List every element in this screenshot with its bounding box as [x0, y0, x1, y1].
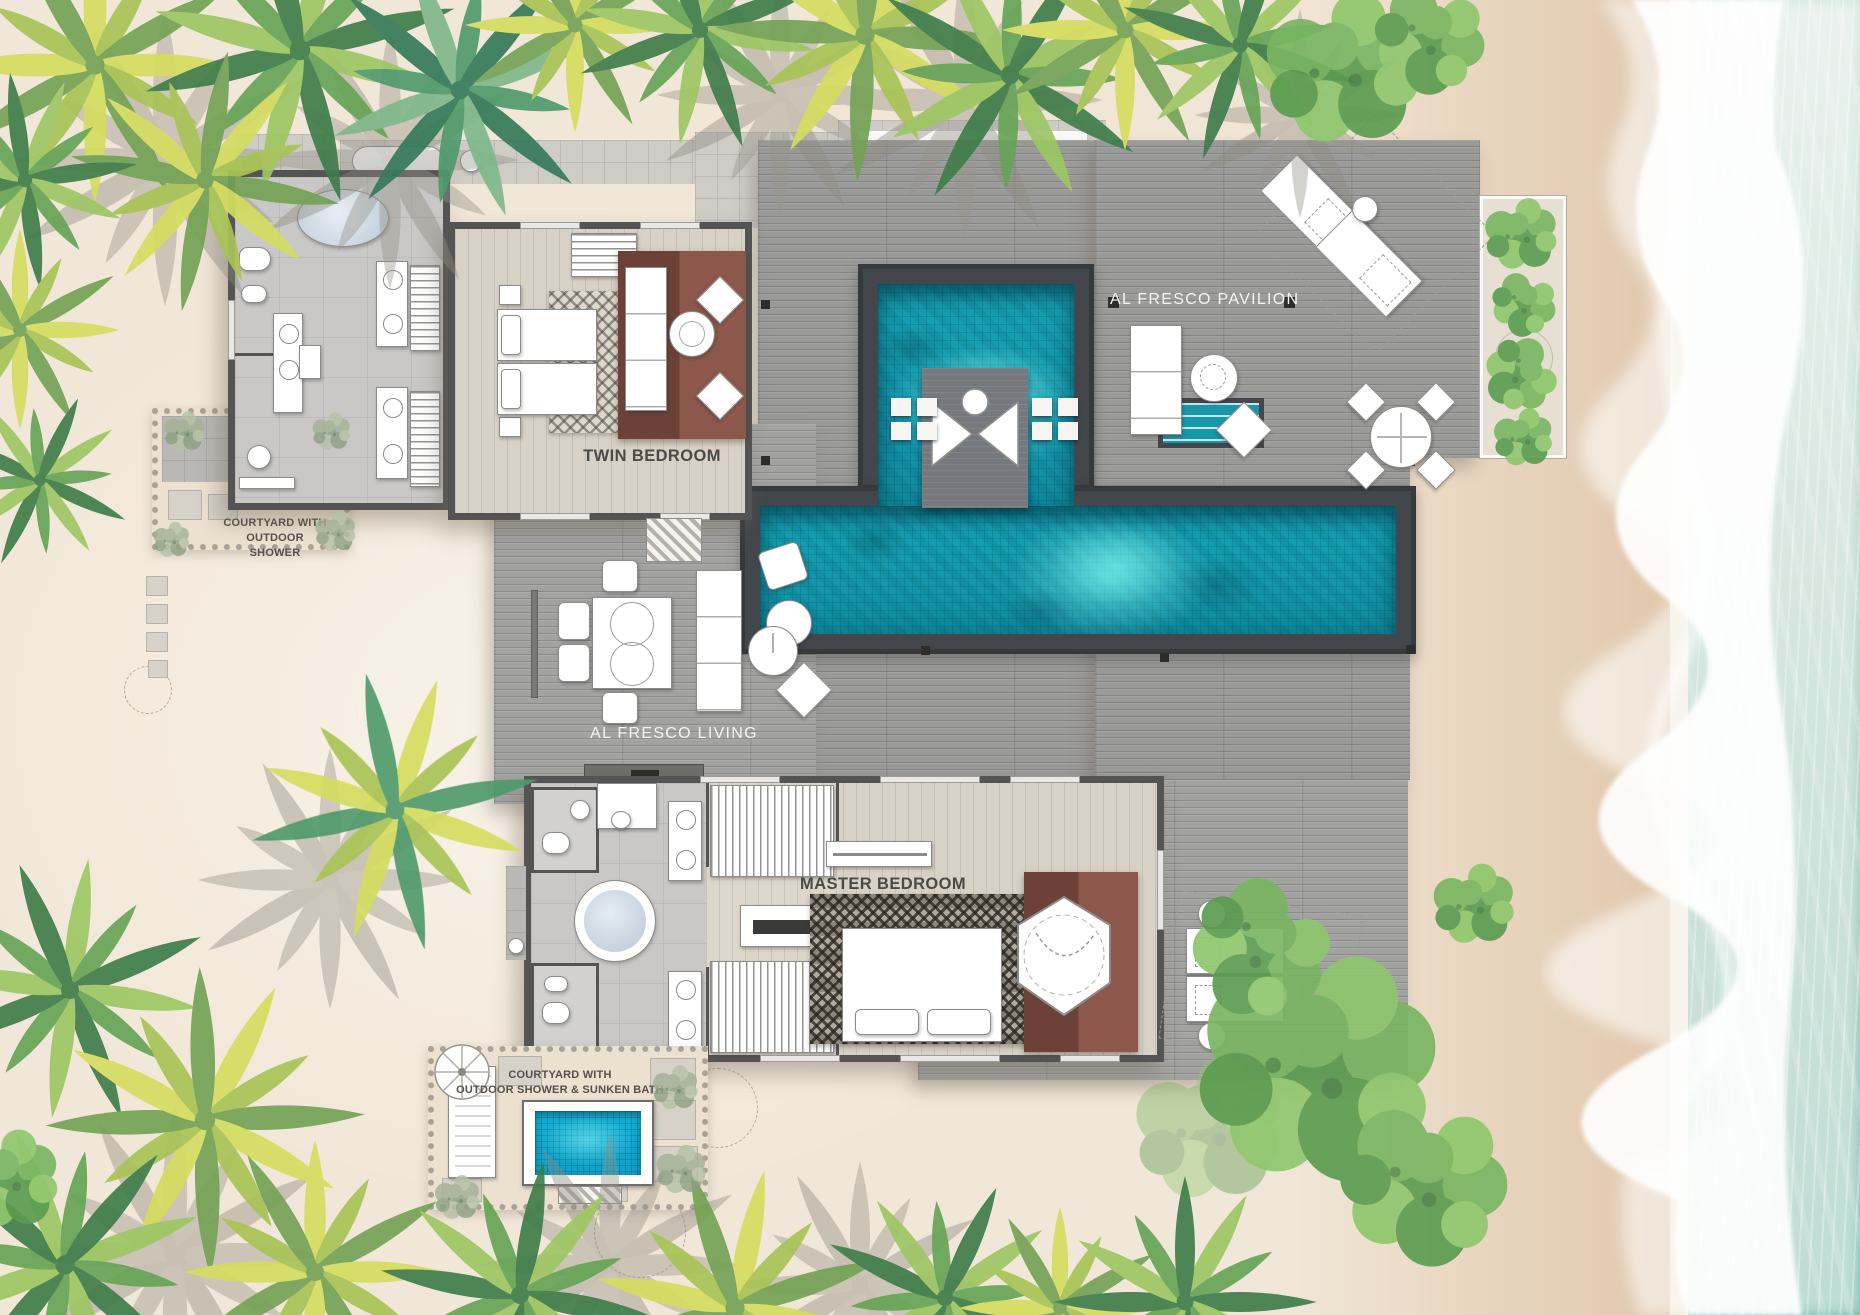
shrub-icon	[164, 411, 204, 451]
shrub-icon	[313, 413, 350, 450]
shrub-icon	[657, 1145, 706, 1193]
shrub-icon	[435, 1175, 480, 1219]
planter-bush-icon	[1486, 338, 1556, 409]
vegetation-layer	[0, 0, 1860, 1315]
bush-tree-icon	[1434, 864, 1514, 943]
shrub-icon	[154, 522, 190, 557]
planter-bush-icon	[1494, 408, 1552, 465]
shrub-icon	[653, 1065, 698, 1109]
shrub-icon	[315, 511, 355, 551]
planter-bush-icon	[1485, 198, 1556, 268]
palm-tree-icon	[0, 229, 119, 429]
villa-floor-plan: COURTYARD WITH OUTDOOR SHOWER	[0, 0, 1860, 1315]
palm-tree-icon	[224, 638, 564, 978]
planter-bush-icon	[1480, 259, 1568, 347]
